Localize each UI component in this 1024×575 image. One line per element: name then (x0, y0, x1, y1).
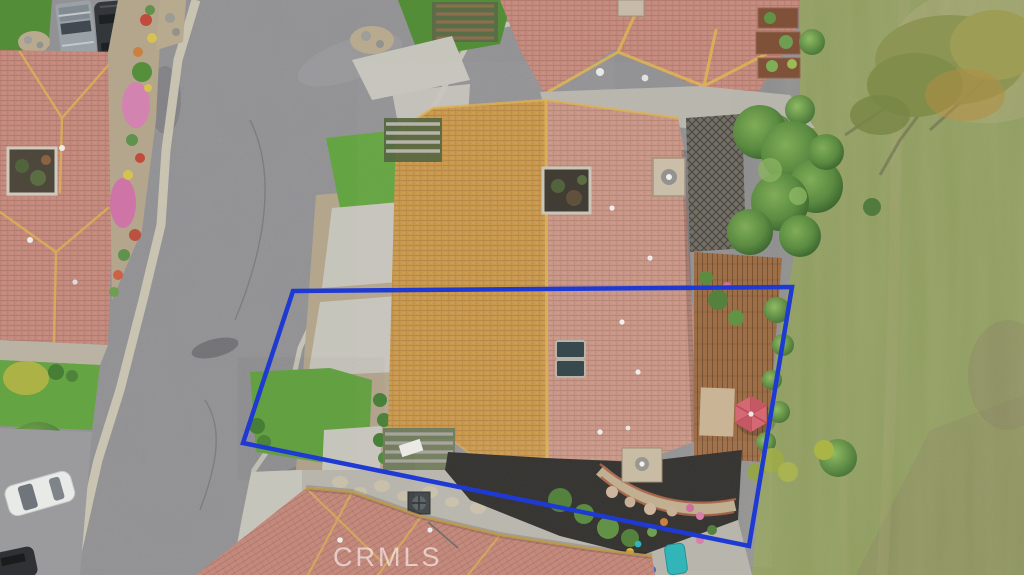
aerial-photo: CRMLS (0, 0, 1024, 575)
aerial-photo-canvas: CRMLS (0, 0, 1024, 575)
crmls-watermark: CRMLS (333, 542, 443, 572)
